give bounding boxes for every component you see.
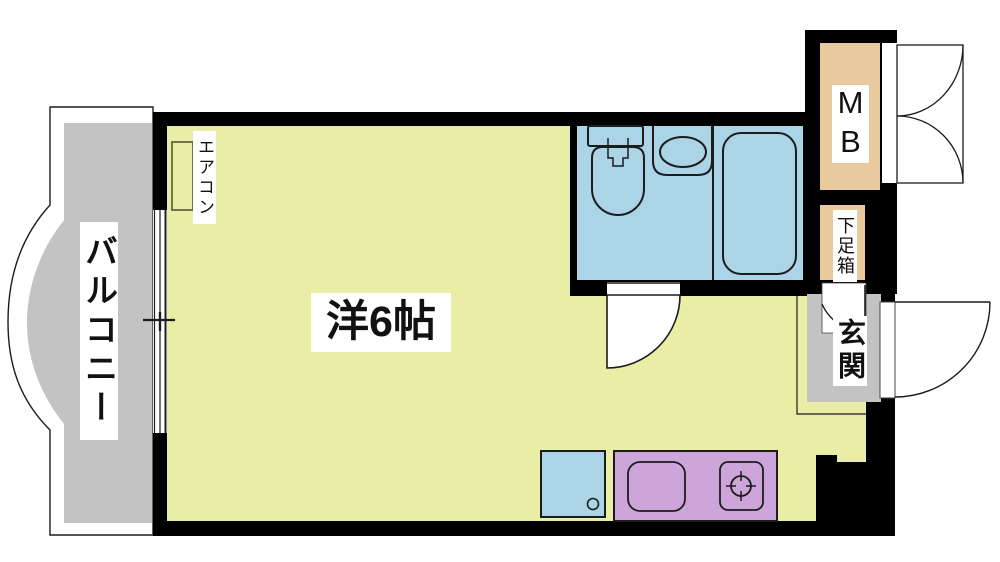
entrance-door-arc [895,302,990,397]
wall-bottom [153,521,895,536]
air-conditioner-label: エアコン [193,131,216,224]
kitchen-sink-unit [541,451,605,517]
entrance-doorway [880,302,895,398]
entrance-label: 玄関 [833,316,867,386]
room-label: 洋6帖 [311,293,451,352]
floor-plan: 洋6帖 バルコニー エアコン MB 下足箱 玄関 [0,0,1000,562]
bathroom-floor [577,126,803,280]
bathroom-doorway [607,282,680,296]
kitchen-side-wall-b [837,462,895,536]
meter-box-doorway [882,43,897,183]
meter-box-doors-frame [897,45,963,183]
wall-left-lower [153,433,167,535]
shoe-box-label: 下足箱 [833,210,857,282]
meter-box-label: MB [832,85,869,163]
kitchen-side-wall-a [816,455,837,536]
wall-left-upper [153,112,167,210]
balcony-label: バルコニー [80,222,118,440]
